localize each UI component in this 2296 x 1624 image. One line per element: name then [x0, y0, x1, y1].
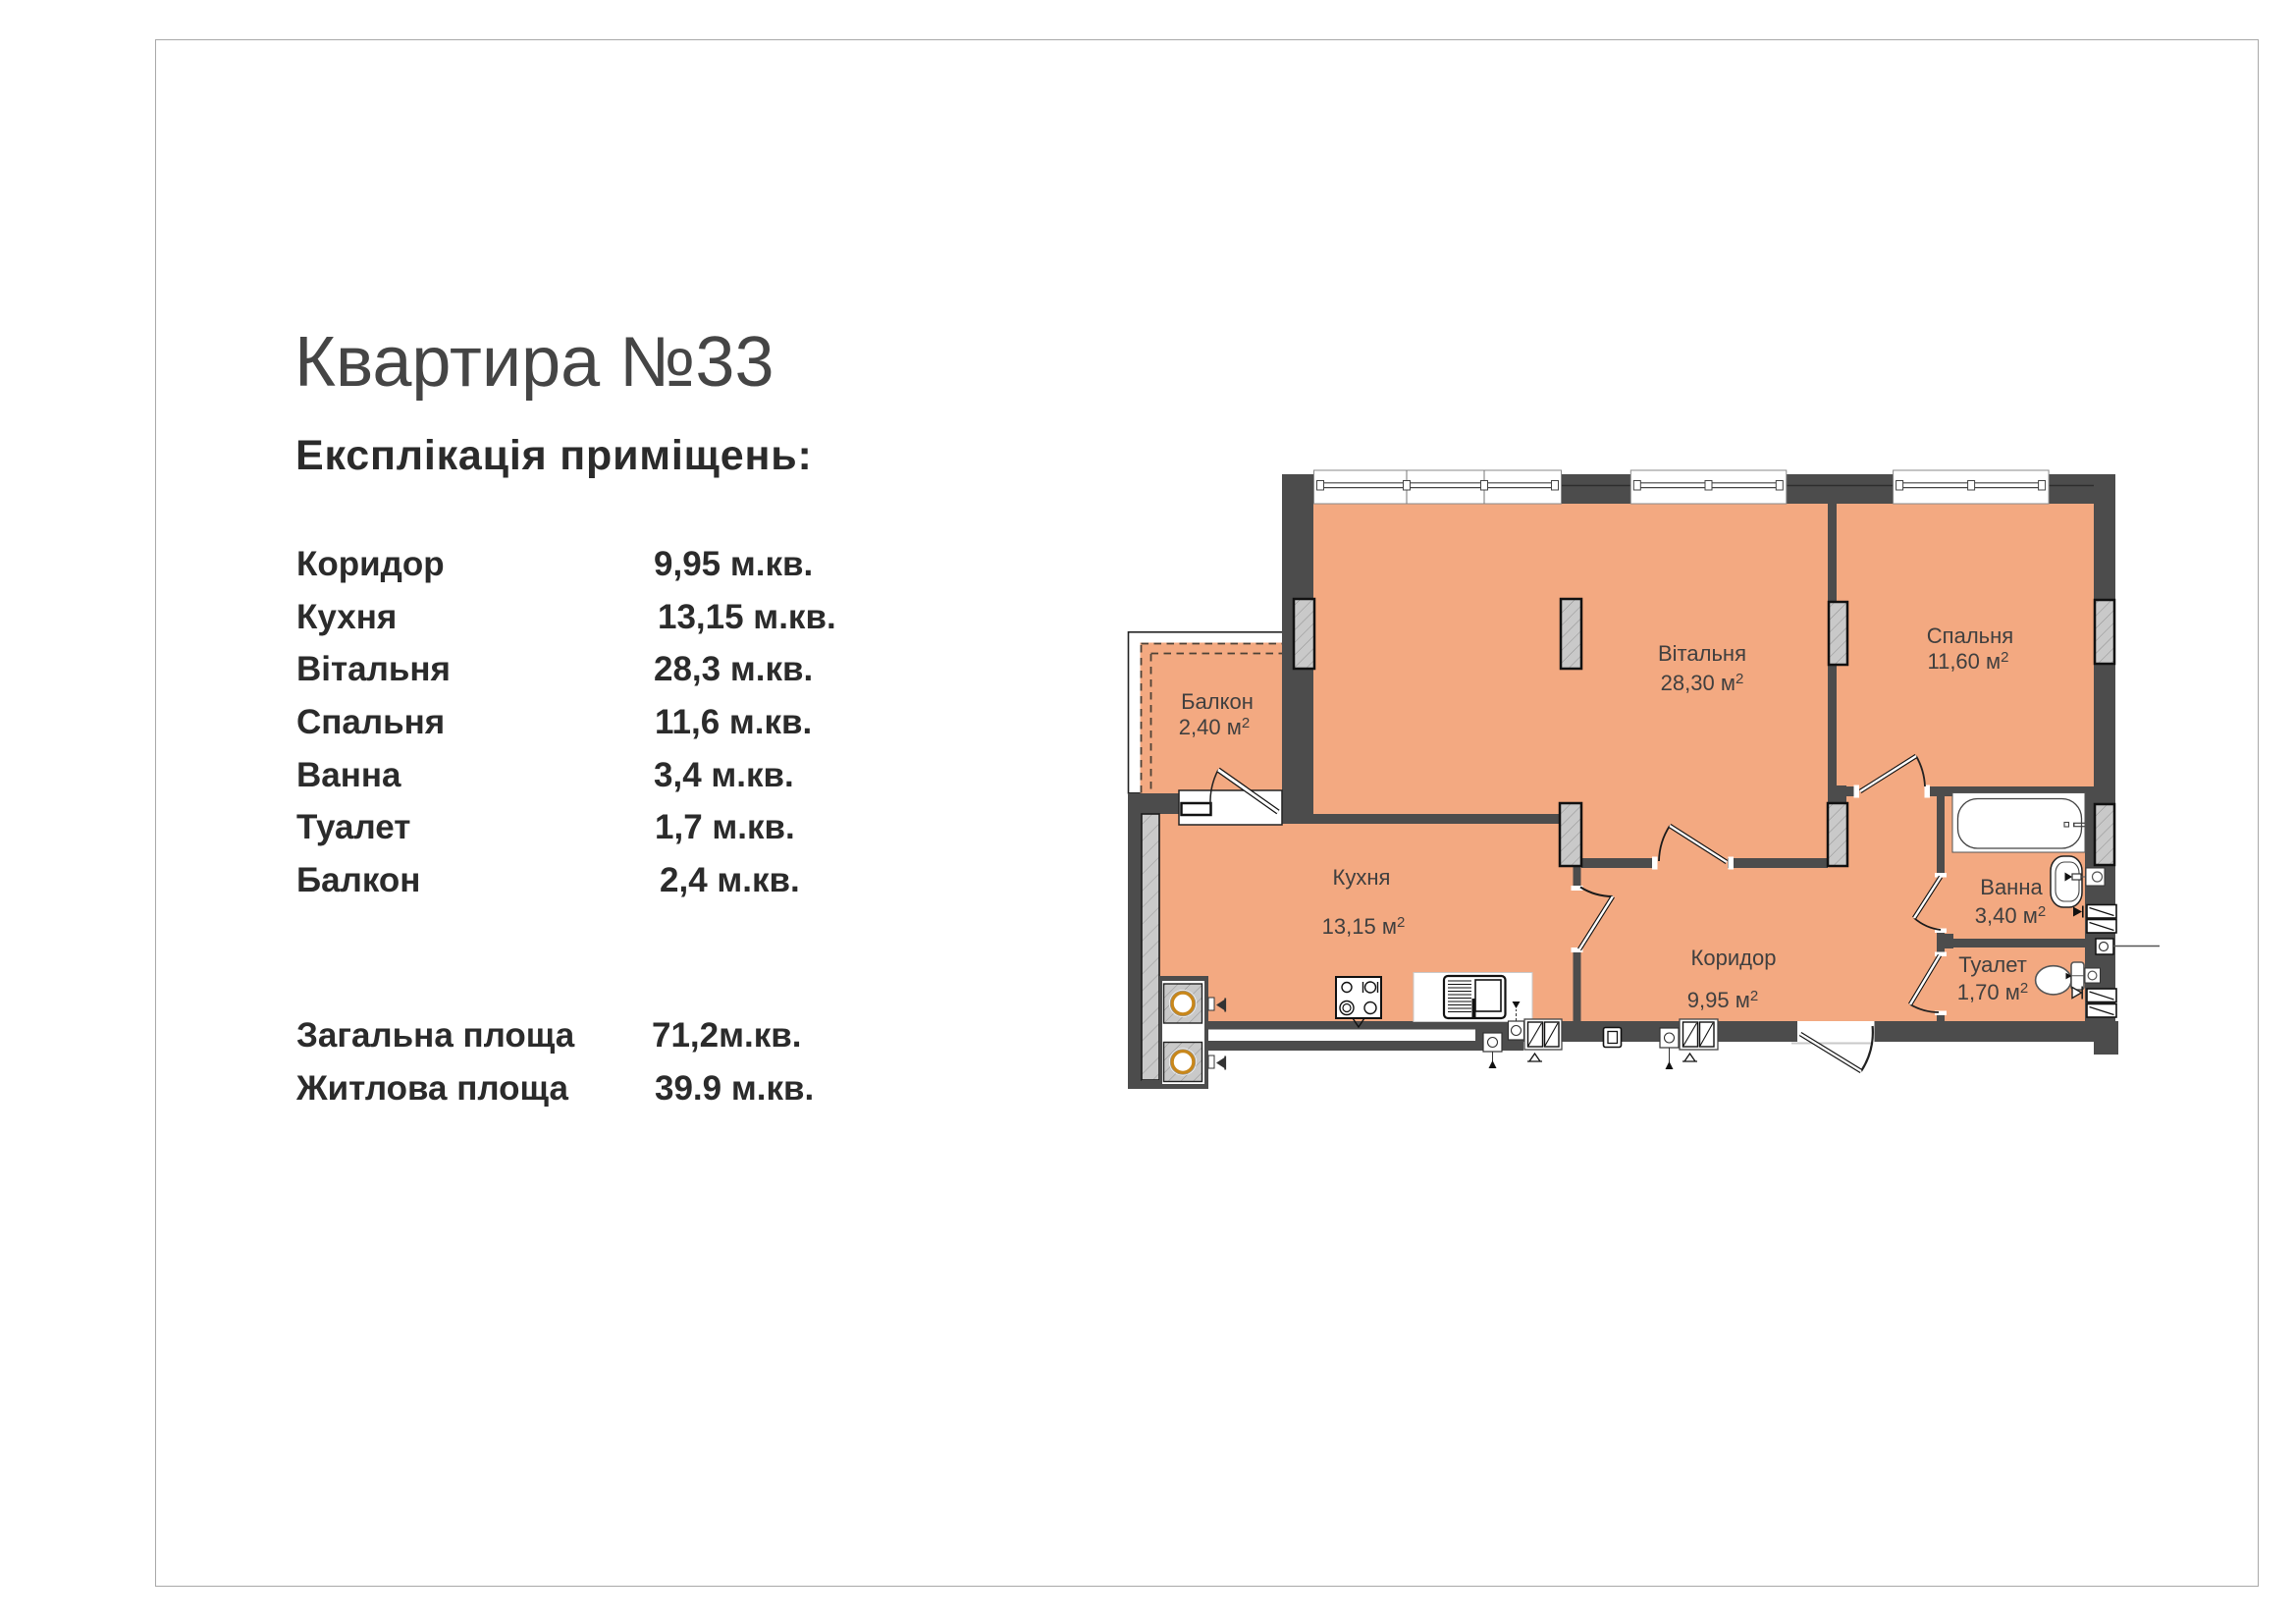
svg-text:2,40 м2: 2,40 м2 — [1179, 715, 1250, 739]
svg-text:3,40 м2: 3,40 м2 — [1975, 903, 2046, 928]
svg-text:1,70 м2: 1,70 м2 — [1957, 980, 2028, 1004]
svg-text:28,30 м2: 28,30 м2 — [1661, 671, 1744, 695]
svg-text:Коридор: Коридор — [1691, 946, 1777, 970]
svg-text:Вітальня: Вітальня — [1658, 641, 1746, 666]
svg-text:Туалет: Туалет — [1958, 952, 2027, 977]
svg-text:Балкон: Балкон — [1181, 689, 1254, 714]
svg-text:Спальня: Спальня — [1927, 623, 2013, 648]
svg-text:Кухня: Кухня — [1333, 865, 1391, 890]
svg-text:9,95 м2: 9,95 м2 — [1687, 988, 1758, 1012]
svg-text:13,15 м2: 13,15 м2 — [1322, 914, 1406, 939]
svg-text:11,60 м2: 11,60 м2 — [1927, 649, 2008, 674]
svg-text:Ванна: Ванна — [1980, 875, 2043, 899]
